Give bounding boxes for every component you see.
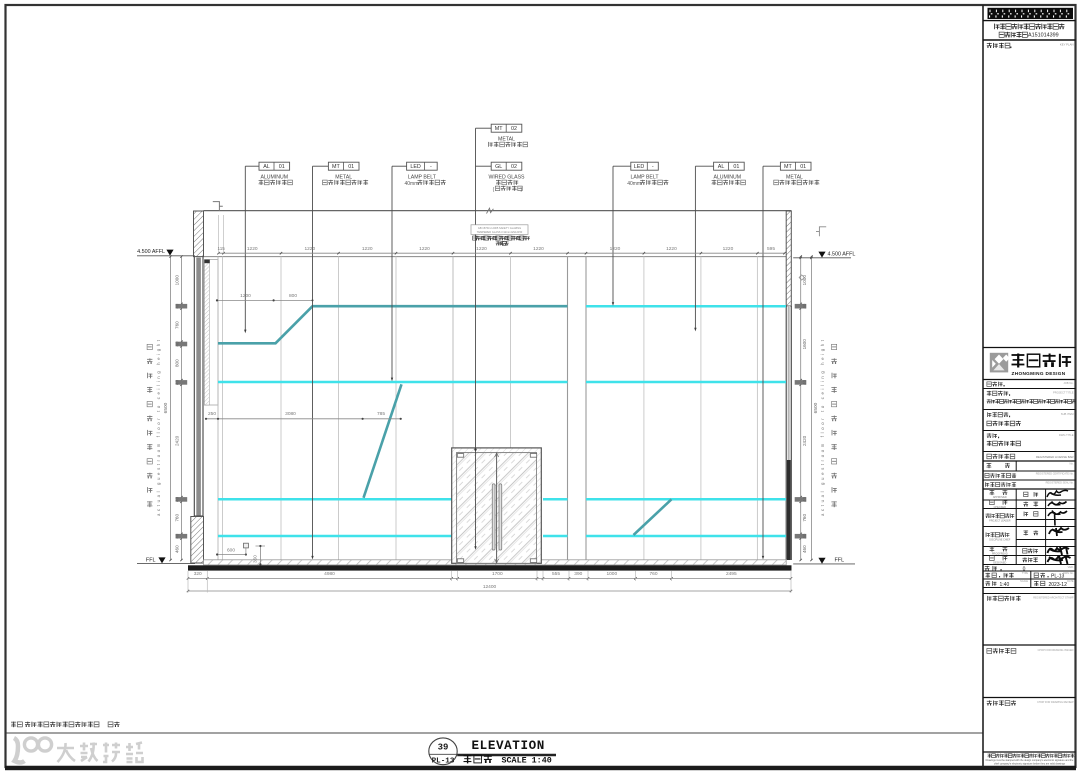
svg-text:LED: LED (410, 164, 421, 170)
svg-text:390: 390 (574, 571, 582, 577)
svg-text:LAMP BELT: LAMP BELT (630, 175, 659, 181)
svg-text:01: 01 (733, 164, 739, 170)
svg-text:TYPE: TYPE (1022, 572, 1029, 575)
svg-text:1200: 1200 (240, 293, 251, 299)
svg-text:40: 40 (174, 379, 179, 385)
svg-text:460: 460 (174, 545, 179, 553)
svg-text:1600: 1600 (802, 339, 807, 350)
svg-text:40: 40 (174, 341, 179, 347)
svg-text:760: 760 (174, 321, 179, 329)
svg-text:760: 760 (649, 571, 657, 577)
svg-text:01: 01 (279, 164, 285, 170)
svg-text:-: - (652, 164, 654, 170)
svg-text:GB 15763.2-2005 SAFETY GLAZING: GB 15763.2-2005 SAFETY GLAZING (478, 226, 521, 230)
svg-text:PROJECT LEADER: PROJECT LEADER (989, 519, 1011, 522)
svg-text:SCALE 1:40: SCALE 1:40 (502, 755, 552, 765)
svg-text:KEY PLAN: KEY PLAN (1060, 42, 1074, 46)
svg-text:800: 800 (289, 293, 297, 299)
svg-text:1220: 1220 (476, 246, 487, 252)
svg-text:actual guestroom floor to ceil: actual guestroom floor to ceiling height (156, 339, 161, 516)
svg-text:AL: AL (263, 164, 270, 170)
svg-text:595: 595 (767, 246, 775, 252)
svg-text:VER.: VER. (1068, 566, 1074, 569)
svg-text:METAL: METAL (498, 137, 515, 143)
svg-text:AL: AL (718, 164, 725, 170)
svg-text:GL: GL (495, 164, 502, 170)
svg-text:DISCIPLINE CHIEF: DISCIPLINE CHIEF (989, 538, 1011, 541)
svg-text:40: 40 (174, 496, 179, 502)
svg-text:6500: 6500 (163, 402, 169, 413)
svg-text:4.500 AFFL: 4.500 AFFL (137, 249, 165, 255)
svg-text:MT: MT (495, 126, 503, 132)
svg-text:METAL: METAL (786, 175, 803, 181)
svg-text:-: - (430, 164, 432, 170)
svg-text:02: 02 (511, 126, 517, 132)
svg-text:12400: 12400 (483, 584, 497, 590)
svg-text:REGISTERED ARCHITECT STAMP: REGISTERED ARCHITECT STAMP (1033, 597, 1074, 600)
svg-text:REGISTERED SEAL No.: REGISTERED SEAL No. (1046, 482, 1074, 485)
svg-text:1220: 1220 (610, 246, 621, 252)
svg-text:800: 800 (174, 359, 179, 367)
svg-text:JOB No.: JOB No. (1063, 381, 1073, 385)
svg-text:1000: 1000 (174, 275, 179, 286)
svg-text:40: 40 (802, 533, 807, 539)
svg-text:LED: LED (634, 164, 645, 170)
svg-text:LAMP BELT: LAMP BELT (408, 175, 437, 181)
svg-text:1700: 1700 (492, 571, 503, 577)
svg-text:4.500 AFFL: 4.500 AFFL (828, 251, 856, 257)
svg-text:ALUMINUM: ALUMINUM (713, 175, 741, 181)
svg-text:ZHONGMING DESIGN: ZHONGMING DESIGN (1012, 371, 1066, 376)
svg-text:320: 320 (194, 571, 202, 577)
svg-text:ELEVATION: ELEVATION (472, 739, 545, 753)
svg-text:40: 40 (174, 303, 179, 309)
svg-text:DWG No.: DWG No. (1063, 572, 1074, 575)
svg-text:PROJECT TITLE: PROJECT TITLE (1053, 390, 1074, 394)
svg-text:METAL: METAL (335, 175, 352, 181)
svg-text:1220: 1220 (247, 246, 258, 252)
svg-text:785: 785 (377, 411, 385, 417)
svg-text:REGISTERED CERTIFICATE No.: REGISTERED CERTIFICATE No. (1036, 473, 1074, 476)
svg-text:2420: 2420 (802, 435, 807, 446)
svg-text:DWG TITLE: DWG TITLE (1059, 433, 1074, 437)
svg-text:600: 600 (227, 547, 235, 553)
svg-text:760: 760 (174, 514, 179, 522)
svg-text:PL-13: PL-13 (432, 757, 455, 765)
svg-text:40mm: 40mm (627, 181, 641, 187)
svg-text:1220: 1220 (666, 246, 677, 252)
svg-text:250: 250 (208, 411, 216, 417)
svg-text:No.: No. (1069, 462, 1073, 466)
svg-text:TEMPERED GLASS t=12mm EN12150: TEMPERED GLASS t=12mm EN12150 (477, 230, 523, 234)
svg-text:chief company's electronic sig: chief company's electronic signature bef… (994, 763, 1066, 766)
svg-text:39: 39 (438, 742, 449, 752)
svg-text:1220: 1220 (533, 246, 544, 252)
svg-text:760: 760 (802, 514, 807, 522)
svg-text:40: 40 (802, 303, 807, 309)
svg-text:CHOP FOR DRAWING REVIEW: CHOP FOR DRAWING REVIEW (1037, 701, 1074, 704)
svg-text:40: 40 (802, 496, 807, 502)
svg-text:555: 555 (552, 571, 560, 577)
svg-text:APPROVED: APPROVED (993, 496, 1007, 499)
svg-text:40: 40 (802, 379, 807, 385)
svg-text:115: 115 (218, 246, 226, 251)
svg-text:1220: 1220 (362, 246, 373, 252)
svg-text:FFL: FFL (835, 558, 845, 564)
svg-text:350: 350 (253, 555, 258, 563)
svg-text:02: 02 (511, 164, 517, 170)
svg-text:1220: 1220 (304, 246, 315, 252)
svg-text:40: 40 (174, 533, 179, 539)
svg-text:MT: MT (784, 164, 792, 170)
svg-text:460: 460 (802, 545, 807, 553)
svg-text:REGISTERED LICENSE BAR: REGISTERED LICENSE BAR (1036, 455, 1073, 459)
svg-text:A151014399: A151014399 (1028, 33, 1059, 39)
svg-text:1220: 1220 (723, 246, 734, 252)
svg-text:actual guestroom floor to ceil: actual guestroom floor to ceiling height (820, 339, 825, 516)
svg-text:1000: 1000 (606, 571, 617, 577)
svg-text:4980: 4980 (324, 571, 335, 577)
svg-text:1220: 1220 (419, 246, 430, 252)
svg-text:SCALE: SCALE (1020, 580, 1028, 583)
svg-text:DATE: DATE (1067, 580, 1074, 583)
svg-text:2023-12: 2023-12 (1049, 582, 1068, 588)
svg-text:FFL: FFL (146, 557, 156, 563)
svg-text:01: 01 (800, 164, 806, 170)
svg-text:MT: MT (332, 164, 340, 170)
svg-text:2420: 2420 (174, 435, 179, 446)
svg-text:SUB ITEM: SUB ITEM (1061, 412, 1074, 416)
svg-text:01: 01 (348, 164, 354, 170)
svg-text:6500: 6500 (813, 402, 819, 413)
svg-text:3080: 3080 (285, 411, 296, 417)
svg-text:WIRED GLASS: WIRED GLASS (488, 175, 525, 181)
svg-text:2495: 2495 (726, 571, 737, 577)
svg-text:1:40: 1:40 (1000, 582, 1010, 588)
svg-text:CHOP FOR DRAWING ISSUED: CHOP FOR DRAWING ISSUED (1038, 649, 1074, 652)
svg-text:1000: 1000 (802, 275, 807, 286)
svg-text:40mm: 40mm (405, 181, 419, 187)
svg-text:ALUMINUM: ALUMINUM (260, 175, 288, 181)
